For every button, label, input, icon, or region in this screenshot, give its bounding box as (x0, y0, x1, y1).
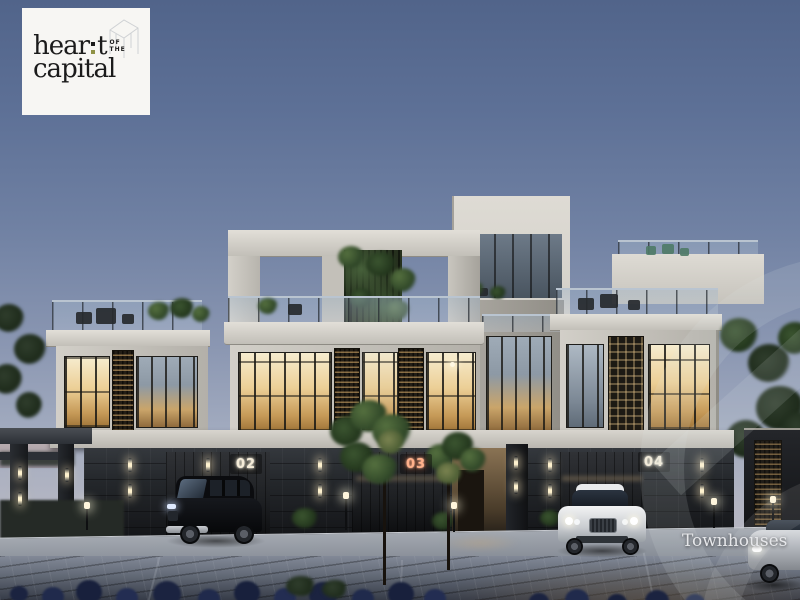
terrace-plant (490, 286, 506, 299)
unit-number-plate: 03 (400, 454, 432, 474)
suv-grille (168, 511, 178, 521)
pergola-hedge (0, 500, 124, 540)
left-building-fascia (46, 330, 210, 347)
unit-number: 03 (406, 457, 426, 472)
flower-foliage (286, 576, 316, 596)
caption: Townhouses (682, 531, 787, 551)
connector-railing (482, 314, 560, 332)
wall-sconce-light (206, 458, 210, 472)
terrace-furniture (578, 298, 594, 310)
pendant-light (450, 362, 455, 367)
terrace-furniture (96, 308, 116, 324)
connector-window (486, 336, 552, 432)
black-suv (166, 474, 266, 548)
brand-connector-the: THE (110, 47, 126, 54)
bollard-light (453, 506, 455, 532)
coupe-front-wheel (566, 538, 583, 555)
dusk-townhouse-render: 02 03 04 (0, 0, 800, 600)
wall-sconce-light (548, 484, 552, 498)
suv-rear-wheel (234, 524, 254, 544)
brand-wordmark: hear t OF THE capital (33, 36, 126, 81)
terrace-furniture (600, 294, 618, 308)
terrace-chair (646, 246, 656, 255)
pergola-beam (0, 428, 92, 444)
green-wall-plants (338, 246, 364, 268)
wall-sconce-light (514, 480, 518, 494)
edge-tree (14, 334, 46, 364)
center-balcony-fascia (224, 322, 484, 345)
bollard-light-head (84, 502, 90, 509)
terrace-plant (170, 298, 194, 318)
wall-sconce-light (318, 484, 322, 498)
bush (432, 512, 454, 530)
coupe-headlight (622, 519, 628, 525)
coupe-rear-wheel (622, 538, 639, 555)
tree-trunk (447, 478, 450, 570)
bollard-light (86, 506, 88, 530)
lit-window (64, 356, 110, 428)
coupe-intake (576, 536, 628, 543)
green-wall-plants (390, 268, 416, 292)
suv-front-wheel (180, 524, 200, 544)
coupe-grille (589, 518, 617, 533)
coupe-headlight (630, 517, 638, 525)
wall-sconce-light (128, 458, 132, 472)
dot-dark (91, 42, 95, 46)
cool-window (566, 344, 604, 428)
wall-sconce-light (318, 458, 322, 472)
wall-sconce-light (548, 458, 552, 472)
suv-windshield (177, 479, 207, 499)
tree-canopy (378, 430, 404, 454)
balcony-plant (258, 298, 278, 314)
entrance-light-spill (440, 534, 520, 552)
tree-canopy (436, 462, 462, 484)
wall-sconce-light (18, 492, 22, 506)
wall-sconce-light (514, 456, 518, 470)
terrace-furniture (76, 312, 92, 324)
brand-connector: OF THE (110, 40, 126, 53)
edge-tree (0, 364, 22, 394)
tree-canopy (362, 454, 398, 484)
brand-logo-panel: hear t OF THE capital (22, 8, 150, 115)
lattice-screen (608, 336, 644, 434)
coupe-headlight (565, 517, 573, 525)
flower-foliage (322, 580, 348, 598)
garage-soffit-glow (562, 476, 642, 481)
tree-canopy (460, 448, 486, 472)
terrace-plant (148, 302, 170, 320)
lamp-head (343, 492, 349, 499)
edge-tree (16, 392, 42, 418)
terrace-plant (192, 306, 210, 322)
pergola-beam-lower (0, 452, 60, 460)
unit-number-plate: 02 (230, 454, 262, 474)
tree-trunk (383, 470, 386, 585)
terrace-furniture (628, 300, 640, 310)
bush (292, 508, 318, 528)
white-luxury-coupe (556, 484, 648, 558)
lamp-post (345, 496, 347, 530)
wall-sconce-light (128, 484, 132, 498)
brand-word-capital: capital (33, 59, 126, 80)
terrace-furniture (122, 314, 134, 324)
bollard-light-head (451, 502, 457, 509)
wall-sconce-light (18, 466, 22, 480)
flowers-navy (10, 586, 28, 600)
coupe-headlight (574, 519, 580, 525)
wall-sconce-light (65, 468, 69, 482)
unit-number: 02 (236, 457, 256, 472)
entrance-door (458, 470, 484, 536)
terrace-chair (662, 244, 674, 254)
lit-window (238, 352, 332, 432)
brand-colon-dots (91, 42, 95, 54)
suv-headlight (167, 504, 176, 509)
mixed-window (136, 356, 198, 428)
edge-tree (0, 304, 24, 332)
balcony-furniture (288, 304, 302, 315)
perforated-screen (112, 350, 134, 432)
suv-side-windows (210, 480, 250, 496)
terrace-chair (680, 248, 689, 256)
